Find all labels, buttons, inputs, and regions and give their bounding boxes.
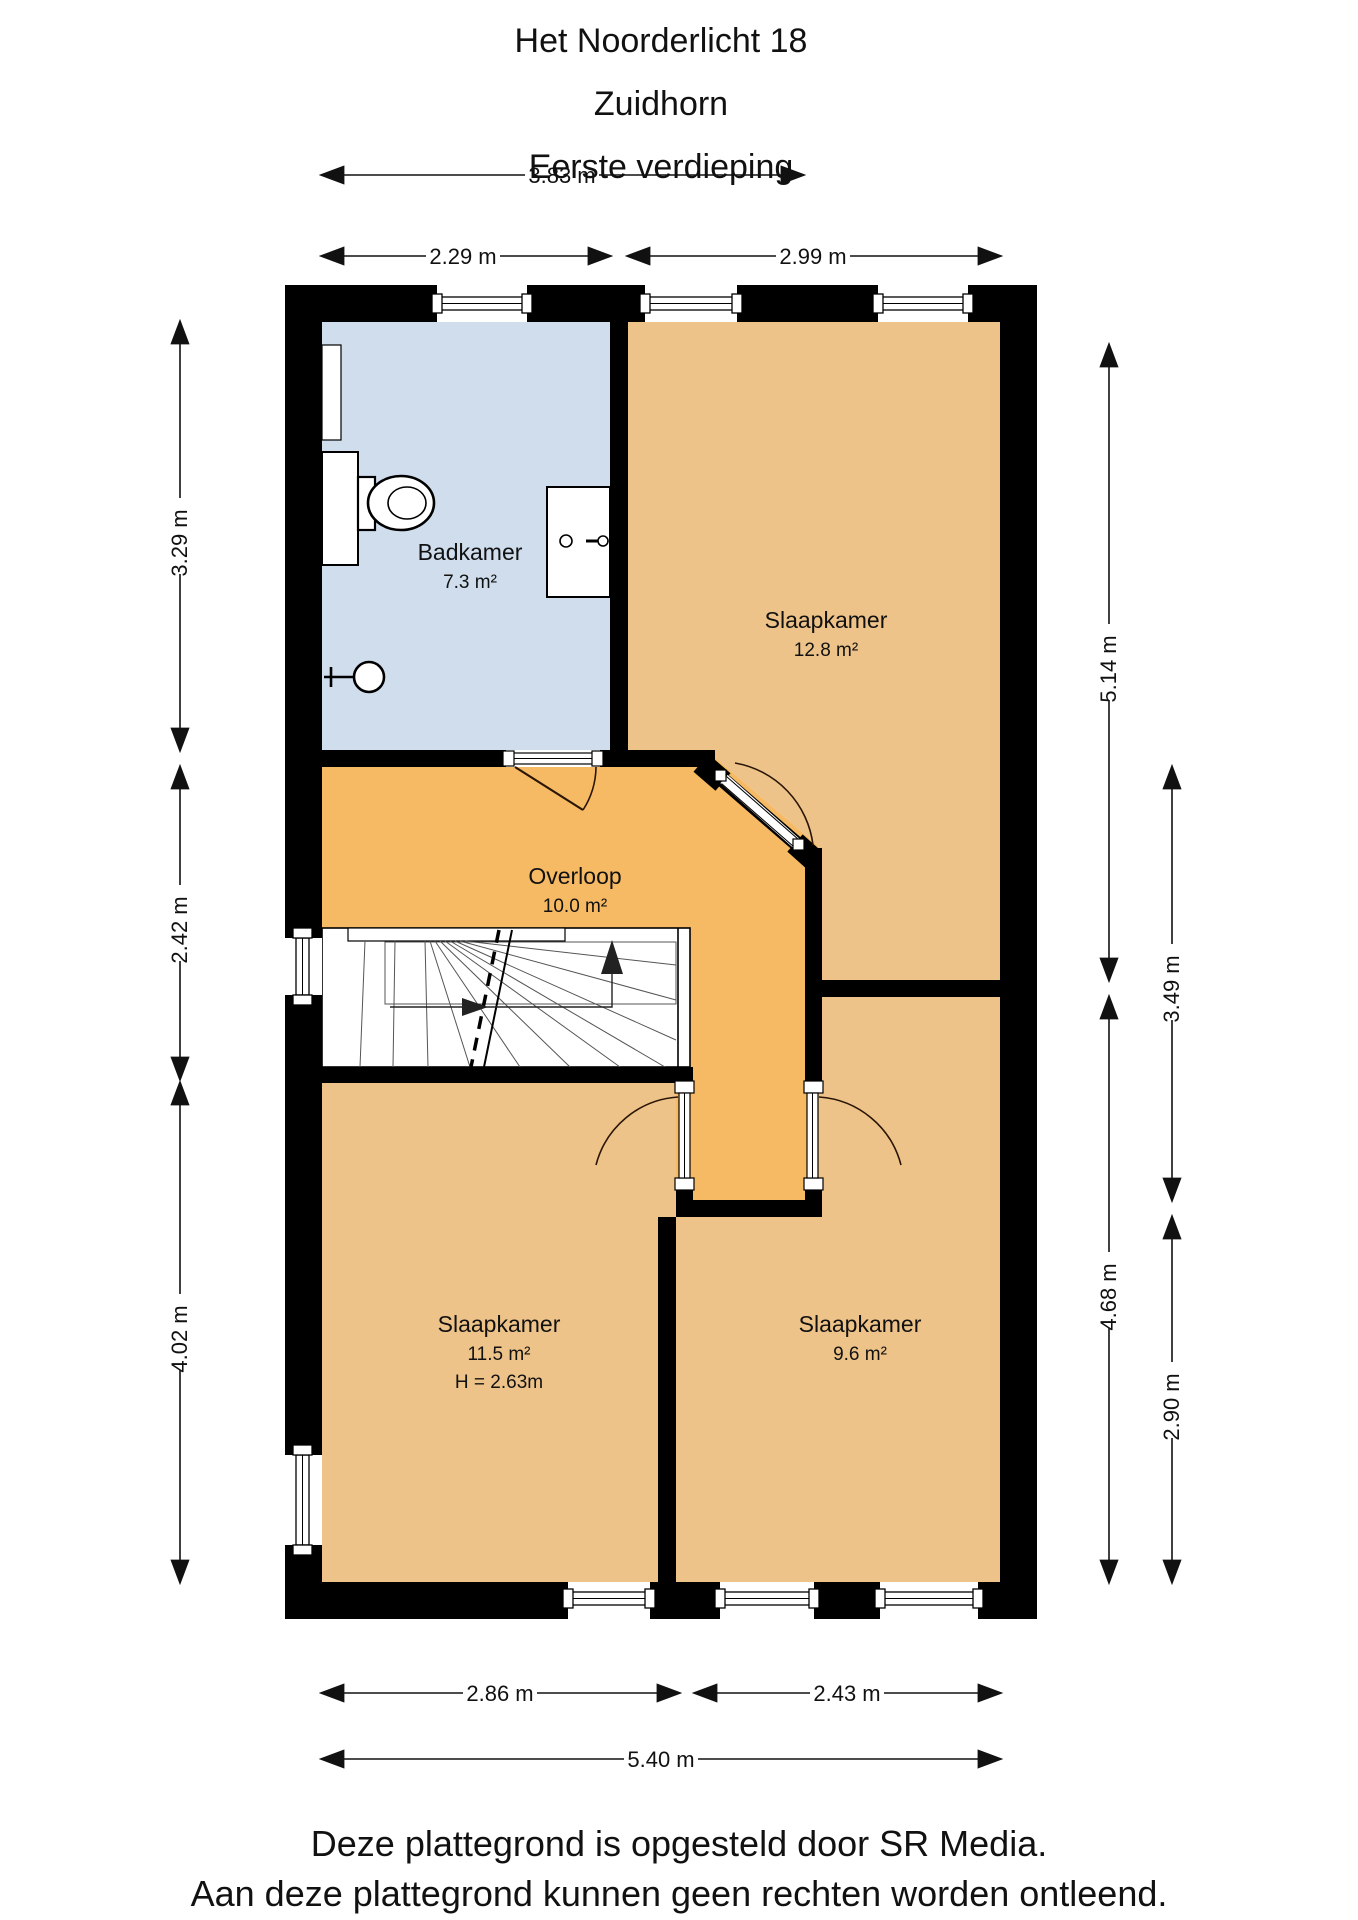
window-slaapkamer9-bottom-right-icon <box>875 1582 983 1619</box>
label-slaapkamer9-area: 9.6 m² <box>833 1344 887 1365</box>
window-slaapkamer12-right-icon <box>873 285 973 322</box>
plan-title: Het Noorderlicht 18 Zuidhorn Eerste verd… <box>515 22 808 186</box>
footer-credit: Deze plattegrond is opgesteld door SR Me… <box>311 1823 1047 1864</box>
dim-right-inner-bottom: 4.68 m <box>1096 997 1121 1582</box>
svg-text:2.90 m: 2.90 m <box>1159 1373 1184 1440</box>
wall-badkamer-bottom-stub <box>600 750 628 767</box>
toilet-icon <box>358 476 434 530</box>
sink-icon <box>547 487 610 597</box>
label-slaapkamer9-name: Slaapkamer <box>799 1311 922 1337</box>
floor-plan-drawing: Het Noorderlicht 18 Zuidhorn Eerste verd… <box>0 0 1358 1920</box>
duct-shaft <box>322 452 358 565</box>
svg-text:4.68 m: 4.68 m <box>1096 1263 1121 1330</box>
svg-text:3.29 m: 3.29 m <box>167 509 192 576</box>
svg-text:2.86 m: 2.86 m <box>466 1681 533 1706</box>
dim-left-top: 3.29 m <box>167 322 192 750</box>
window-slaapkamer11-left-icon <box>285 1445 322 1555</box>
dim-top-left: 2.29 m <box>322 244 610 269</box>
window-slaapkamer11-bottom-icon <box>563 1582 655 1619</box>
wall-slaapkamer11-slaapkamer9 <box>658 1217 676 1582</box>
stairs-landing <box>348 928 565 941</box>
label-slaapkamer11-height: H = 2.63m <box>455 1372 543 1393</box>
wall-corridor-right-upper <box>805 848 822 1093</box>
wall-badkamer-bottom <box>322 750 506 767</box>
window-slaapkamer12-left-icon <box>640 285 742 322</box>
svg-text:5.40 m: 5.40 m <box>627 1747 694 1772</box>
wall-stairs-bottom <box>322 1067 676 1083</box>
label-overloop-name: Overloop <box>528 863 621 889</box>
window-badkamer-icon <box>432 285 532 322</box>
wall-slaapkamer12-slaapkamer9 <box>817 980 1000 997</box>
window-stairs-icon <box>285 928 322 1005</box>
plan-footer: Deze plattegrond is opgesteld door SR Me… <box>191 1823 1168 1914</box>
title-address: Het Noorderlicht 18 <box>515 22 808 60</box>
dim-right-outer-bottom: 2.90 m <box>1159 1217 1184 1582</box>
wall-badkamer-slaapkamer12 <box>610 322 628 767</box>
label-badkamer-area: 7.3 m² <box>443 572 497 593</box>
title-city: Zuidhorn <box>594 85 728 123</box>
staircase <box>322 928 690 1067</box>
floor-plan-page: Het Noorderlicht 18 Zuidhorn Eerste verd… <box>0 0 1358 1920</box>
svg-text:2.43 m: 2.43 m <box>813 1681 880 1706</box>
dim-bottom-right: 2.43 m <box>695 1681 1000 1706</box>
label-slaapkamer11-area: 11.5 m² <box>467 1344 530 1365</box>
label-slaapkamer11-name: Slaapkamer <box>438 1311 561 1337</box>
dim-right-outer-top: 3.49 m <box>1159 767 1184 1200</box>
svg-text:3.83 m: 3.83 m <box>528 163 595 188</box>
wall-right <box>1000 285 1037 1619</box>
svg-text:2.99 m: 2.99 m <box>779 244 846 269</box>
label-slaapkamer12-area: 12.8 m² <box>794 640 858 661</box>
dim-right-inner-top: 5.14 m <box>1096 345 1121 980</box>
dim-top-right: 2.99 m <box>628 244 1000 269</box>
label-badkamer-name: Badkamer <box>418 539 523 565</box>
wall-niche <box>322 345 341 440</box>
svg-text:2.29 m: 2.29 m <box>429 244 496 269</box>
dim-left-bottom: 4.02 m <box>167 1083 192 1582</box>
dim-bottom-total: 5.40 m <box>322 1747 1000 1772</box>
svg-text:4.02 m: 4.02 m <box>167 1305 192 1372</box>
dim-left-middle: 2.42 m <box>167 767 192 1079</box>
window-slaapkamer9-bottom-left-icon <box>715 1582 819 1619</box>
dim-bottom-left: 2.86 m <box>322 1681 679 1706</box>
label-overloop-area: 10.0 m² <box>543 896 607 917</box>
svg-text:2.42 m: 2.42 m <box>167 896 192 963</box>
svg-text:5.14 m: 5.14 m <box>1096 635 1121 702</box>
wall-corridor-bottom <box>676 1200 817 1217</box>
svg-text:3.49 m: 3.49 m <box>1159 955 1184 1022</box>
label-slaapkamer12-name: Slaapkamer <box>765 607 888 633</box>
footer-disclaimer: Aan deze plattegrond kunnen geen rechten… <box>191 1873 1168 1914</box>
